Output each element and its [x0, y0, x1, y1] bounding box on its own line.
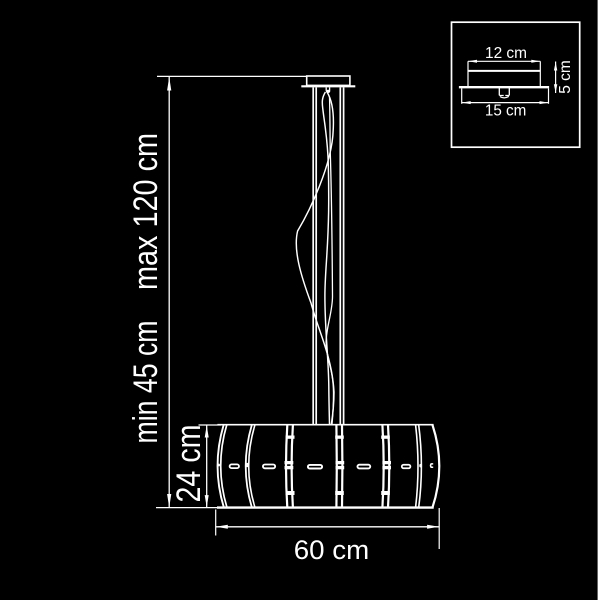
svg-text:min 45 cm: min 45 cm: [127, 321, 165, 444]
svg-text:24 cm: 24 cm: [170, 425, 208, 503]
svg-text:60 cm: 60 cm: [294, 535, 370, 565]
svg-text:12 cm: 12 cm: [485, 45, 527, 62]
svg-text:max 120 cm: max 120 cm: [127, 133, 165, 290]
svg-text:15 cm: 15 cm: [485, 102, 527, 119]
svg-text:5 cm: 5 cm: [557, 60, 574, 94]
